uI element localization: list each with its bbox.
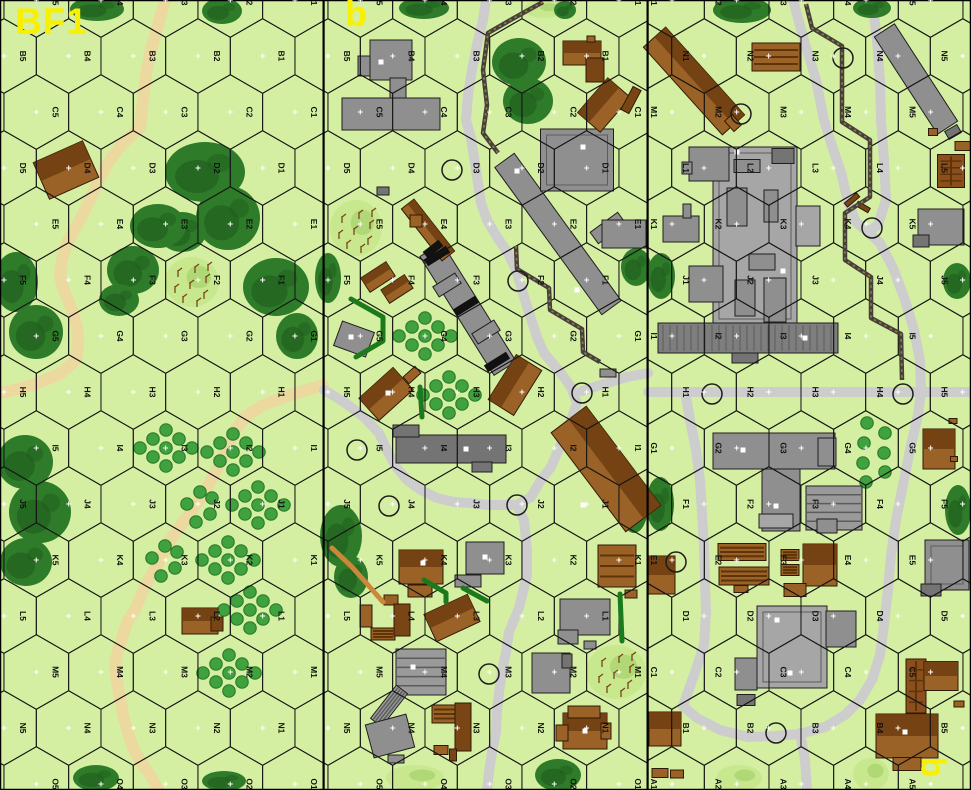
stone-building <box>796 206 820 246</box>
hex-coordinate-label: G4 <box>439 330 449 342</box>
hex-coordinate-label: E5 <box>374 219 384 230</box>
door-marker <box>581 145 586 150</box>
hex-coordinate-label: M5 <box>374 666 384 678</box>
hex-coordinate-label: B5 <box>342 51 352 62</box>
door-marker <box>774 504 779 509</box>
wooden-building <box>556 725 568 741</box>
hex-coordinate-label: E4 <box>843 555 853 566</box>
hex-coordinate-label: M1 <box>649 106 659 118</box>
hex-coordinate-label: N4 <box>407 723 417 734</box>
hex-coordinate-label: I2 <box>244 444 254 451</box>
brush-patch <box>853 758 889 790</box>
door-marker <box>464 447 469 452</box>
hex-coordinate-label: I2 <box>568 444 578 451</box>
hex-coordinate-label: K4 <box>115 555 125 566</box>
woods <box>130 204 186 248</box>
hex-coordinate-label: A5 <box>374 0 384 6</box>
hex-coordinate-label: N5 <box>940 51 950 62</box>
door-marker <box>903 730 908 735</box>
hex-coordinate-label: J4 <box>407 499 417 509</box>
hex-coordinate-label: M2 <box>714 106 724 118</box>
hex-coordinate-label: B4 <box>875 723 885 734</box>
hex-coordinate-label: F3 <box>810 499 820 509</box>
door-marker <box>411 665 416 670</box>
hex-coordinate-label: H3 <box>147 387 157 398</box>
hex-coordinate-label: C3 <box>504 107 514 118</box>
stone-building <box>663 216 699 242</box>
hex-coordinate-label: O5 <box>908 0 918 6</box>
stone-building <box>749 254 775 270</box>
brush-patch <box>386 765 444 790</box>
hex-coordinate-label: H1 <box>681 387 691 398</box>
hex-coordinate-label: G5 <box>374 330 384 342</box>
hex-coordinate-label: J4 <box>875 275 885 285</box>
hex-coordinate-label: C5 <box>908 667 918 678</box>
stone-building <box>764 190 778 222</box>
wooden-building <box>924 662 958 691</box>
hex-coordinate-label: A3 <box>778 779 788 790</box>
wooden-building <box>649 712 681 746</box>
stone-building <box>558 630 578 644</box>
hex-coordinate-label: C2 <box>244 107 254 118</box>
hex-coordinate-label: B3 <box>147 51 157 62</box>
hex-coordinate-label: H5 <box>18 387 28 398</box>
hex-coordinate-label: J1 <box>277 499 287 509</box>
hex-coordinate-label: D1 <box>681 611 691 622</box>
hex-coordinate-label: K5 <box>908 219 918 230</box>
stone-building <box>370 40 412 80</box>
hex-coordinate-label: O5 <box>374 778 384 790</box>
wooden-building <box>718 544 766 561</box>
stone-building <box>377 187 389 195</box>
stone-building <box>584 641 596 649</box>
hex-coordinate-label: G5 <box>50 330 60 342</box>
hex-coordinate-label: G1 <box>649 442 659 454</box>
hex-coordinate-label: O2 <box>568 778 578 790</box>
hex-coordinate-label: J5 <box>18 499 28 509</box>
hex-coordinate-label: B3 <box>471 51 481 62</box>
hex-coordinate-label: C3 <box>778 667 788 678</box>
hex-coordinate-label: C4 <box>439 107 449 118</box>
hex-coordinate-label: L4 <box>83 611 93 621</box>
wooden-building <box>949 419 957 424</box>
door-marker <box>581 503 586 508</box>
stone-building <box>689 147 729 181</box>
wooden-building <box>587 36 595 42</box>
board-seam <box>647 0 649 790</box>
wooden-building <box>923 429 955 469</box>
hex-coordinate-label: D2 <box>746 611 756 622</box>
board-label-b: b <box>345 0 367 32</box>
stone-building <box>772 149 794 164</box>
stone-building <box>713 433 835 469</box>
board-label-bf1: BF1 <box>15 3 88 40</box>
hex-coordinate-label: O4 <box>439 778 449 790</box>
wooden-building <box>929 129 938 136</box>
wooden-building <box>625 590 637 598</box>
woods <box>9 481 71 543</box>
hex-coordinate-label: C2 <box>714 667 724 678</box>
hex-coordinate-label: I4 <box>843 332 853 339</box>
hex-coordinate-label: G3 <box>504 330 514 342</box>
hex-coordinate-label: E5 <box>50 219 60 230</box>
hex-coordinate-label: G2 <box>244 330 254 342</box>
hex-coordinate-label: E1 <box>633 219 643 230</box>
hex-coordinate-label: J5 <box>342 499 352 509</box>
hex-coordinate-label: M3 <box>778 106 788 118</box>
hex-coordinate-label: B3 <box>810 723 820 734</box>
hex-coordinate-label: K4 <box>439 555 449 566</box>
hex-coordinate-label: F1 <box>601 275 611 285</box>
wooden-building <box>951 457 958 462</box>
hex-coordinate-label: H3 <box>810 387 820 398</box>
hex-coordinate-label: I4 <box>439 444 449 451</box>
wooden-building <box>360 605 372 627</box>
hex-coordinate-label: L1 <box>277 611 287 621</box>
wooden-building <box>410 215 422 227</box>
hex-coordinate-label: C4 <box>843 667 853 678</box>
hex-coordinate-label: M1 <box>633 666 643 678</box>
door-marker <box>775 618 780 623</box>
hex-coordinate-label: K5 <box>50 555 60 566</box>
woods <box>99 284 139 316</box>
hex-coordinate-label: K1 <box>649 219 659 230</box>
hex-coordinate-label: K3 <box>180 555 190 566</box>
hex-coordinate-label: F2 <box>746 499 756 509</box>
hex-coordinate-label: I1 <box>633 444 643 451</box>
wooden-building <box>371 628 395 640</box>
hex-coordinate-label: F3 <box>471 275 481 285</box>
wooden-building <box>652 769 668 778</box>
hex-coordinate-label: D2 <box>212 163 222 174</box>
door-marker <box>781 269 786 274</box>
stone-building <box>541 129 614 191</box>
hex-coordinate-label: D2 <box>536 163 546 174</box>
stone-building <box>358 56 370 76</box>
stone-building <box>735 280 755 316</box>
hex-coordinate-label: N2 <box>746 51 756 62</box>
hex-coordinate-label: A1 <box>649 779 659 790</box>
hex-coordinate-label: A3 <box>504 0 514 6</box>
wooden-building <box>954 701 964 707</box>
hex-coordinate-label: F4 <box>875 499 885 509</box>
hex-coordinate-label: D4 <box>407 163 417 174</box>
hex-coordinate-label: F2 <box>212 275 222 285</box>
hex-coordinate-label: J1 <box>601 499 611 509</box>
hex-coordinate-label: N3 <box>147 723 157 734</box>
hex-coordinate-label: H4 <box>875 387 885 398</box>
woods <box>0 538 52 586</box>
hedge <box>620 594 622 641</box>
stone-building <box>913 235 929 247</box>
hex-coordinate-label: I5 <box>50 444 60 451</box>
hex-coordinate-label: G4 <box>115 330 125 342</box>
hex-coordinate-label: A1 <box>633 0 643 6</box>
hex-coordinate-label: K2 <box>244 555 254 566</box>
hex-coordinate-label: J1 <box>681 275 691 285</box>
hex-coordinate-label: G4 <box>843 442 853 454</box>
stone-building <box>658 323 838 353</box>
woods <box>647 253 675 299</box>
hex-coordinate-label: F1 <box>681 499 691 509</box>
hex-coordinate-label: I5 <box>374 444 384 451</box>
hex-coordinate-label: N3 <box>471 723 481 734</box>
hex-coordinate-label: C4 <box>115 107 125 118</box>
hex-coordinate-label: D3 <box>147 163 157 174</box>
hex-coordinate-label: B4 <box>407 51 417 62</box>
hex-coordinate-label: B1 <box>277 51 287 62</box>
stone-building <box>727 188 747 226</box>
door-marker <box>735 150 740 155</box>
hex-coordinate-label: C2 <box>568 107 578 118</box>
hex-coordinate-label: O5 <box>50 778 60 790</box>
hex-coordinate-label: M1 <box>309 666 319 678</box>
hex-coordinate-label: D5 <box>342 163 352 174</box>
door-marker <box>349 335 354 340</box>
hex-coordinate-label: E4 <box>115 219 125 230</box>
hex-coordinate-label: N1 <box>681 51 691 62</box>
door-marker <box>379 60 384 65</box>
hex-coordinate-label: H4 <box>83 387 93 398</box>
hedge <box>420 387 422 417</box>
stone-building <box>764 278 786 322</box>
hex-coordinate-label: C1 <box>309 107 319 118</box>
hex-coordinate-label: M3 <box>180 666 190 678</box>
hex-coordinate-label: A4 <box>843 779 853 790</box>
hex-coordinate-label: O4 <box>115 778 125 790</box>
hex-coordinate-label: G1 <box>309 330 319 342</box>
brush-patch <box>165 257 219 307</box>
hex-coordinate-label: E3 <box>778 555 788 566</box>
hex-coordinate-label: E1 <box>649 555 659 566</box>
hex-coordinate-label: A2 <box>714 779 724 790</box>
hex-coordinate-label: B2 <box>746 723 756 734</box>
woods <box>945 485 971 535</box>
wooden-building <box>586 58 604 82</box>
hex-coordinate-label: E2 <box>568 219 578 230</box>
door-marker <box>575 288 580 293</box>
board-label-b-rotated: b <box>915 757 949 778</box>
hex-coordinate-label: D4 <box>83 163 93 174</box>
hex-coordinate-label: M2 <box>244 666 254 678</box>
hex-coordinate-label: L2 <box>212 611 222 621</box>
board-seam <box>323 0 325 790</box>
hex-coordinate-label: N1 <box>601 723 611 734</box>
hex-coordinate-label: D5 <box>940 611 950 622</box>
stone-building <box>817 519 837 533</box>
stone-building <box>472 462 492 472</box>
hex-coordinate-label: F3 <box>147 275 157 285</box>
hex-coordinate-label: L4 <box>407 611 417 621</box>
hex-coordinate-label: I3 <box>778 332 788 339</box>
hex-coordinate-label: J3 <box>147 499 157 509</box>
hex-coordinate-label: O3 <box>180 778 190 790</box>
hex-coordinate-label: O1 <box>633 778 643 790</box>
hex-coordinate-label: A4 <box>439 0 449 6</box>
hex-coordinate-label: G3 <box>778 442 788 454</box>
hex-coordinate-label: I1 <box>649 332 659 339</box>
wooden-building <box>955 142 971 151</box>
wooden-building <box>876 714 938 758</box>
hex-coordinate-label: K2 <box>714 219 724 230</box>
hex-coordinate-label: O3 <box>504 778 514 790</box>
door-marker <box>741 448 746 453</box>
hex-coordinate-label: I3 <box>180 444 190 451</box>
hex-coordinate-label: M4 <box>115 666 125 678</box>
hex-coordinate-label: C5 <box>50 107 60 118</box>
hex-coordinate-label: H5 <box>342 387 352 398</box>
hex-coordinate-label: H2 <box>212 387 222 398</box>
hex-coordinate-label: A5 <box>908 779 918 790</box>
hex-coordinate-label: D1 <box>277 163 287 174</box>
hex-coordinate-label: C1 <box>649 667 659 678</box>
hex-coordinate-label: E3 <box>504 219 514 230</box>
hex-coordinate-label: H2 <box>746 387 756 398</box>
hex-coordinate-label: L2 <box>746 163 756 173</box>
hex-coordinate-label: I2 <box>714 332 724 339</box>
hex-coordinate-label: B2 <box>536 51 546 62</box>
hex-coordinate-label: B2 <box>212 51 222 62</box>
hex-coordinate-label: G5 <box>908 442 918 454</box>
stone-building <box>826 611 856 647</box>
door-marker <box>515 169 520 174</box>
hex-coordinate-label: J4 <box>83 499 93 509</box>
hex-coordinate-label: I1 <box>309 444 319 451</box>
hex-coordinate-label: I4 <box>115 444 125 451</box>
door-marker <box>386 391 391 396</box>
hex-coordinate-label: N4 <box>875 51 885 62</box>
wooden-building <box>568 706 600 718</box>
hex-coordinate-label: A1 <box>309 0 319 6</box>
hex-coordinate-label: J3 <box>471 499 481 509</box>
hex-coordinate-label: H1 <box>601 387 611 398</box>
hex-coordinate-label: A3 <box>180 0 190 6</box>
hex-coordinate-label: L5 <box>18 611 28 621</box>
hex-coordinate-label: B5 <box>18 51 28 62</box>
hex-coordinate-label: N2 <box>212 723 222 734</box>
hex-coordinate-label: D3 <box>471 163 481 174</box>
hex-coordinate-label: B5 <box>940 723 950 734</box>
door-marker <box>483 555 488 560</box>
stone-building <box>388 755 404 763</box>
woods <box>73 765 119 790</box>
hex-coordinate-label: C3 <box>180 107 190 118</box>
hex-coordinate-label: E3 <box>180 219 190 230</box>
hex-coordinate-label: N5 <box>18 723 28 734</box>
hex-coordinate-label: F1 <box>277 275 287 285</box>
hex-coordinate-label: E5 <box>908 555 918 566</box>
hex-coordinate-label: M2 <box>568 666 578 678</box>
hex-coordinate-label: O3 <box>778 0 788 6</box>
stone-building <box>732 353 758 363</box>
hex-coordinate-label: H3 <box>471 387 481 398</box>
hex-coordinate-label: M3 <box>504 666 514 678</box>
hex-coordinate-label: G2 <box>714 442 724 454</box>
hex-coordinate-label: J2 <box>746 275 756 285</box>
hex-map[interactable]: A5A4A3A2A1B5B4B3B2B1C5C4C3C2C1D5D4D3D2D1… <box>0 0 971 790</box>
hex-coordinate-label: I5 <box>908 332 918 339</box>
hex-coordinate-label: G2 <box>568 330 578 342</box>
wooden-building <box>399 550 443 584</box>
hex-coordinate-label: M4 <box>843 106 853 118</box>
hex-coordinate-label: G1 <box>633 330 643 342</box>
hex-coordinate-label: K4 <box>843 219 853 230</box>
hex-coordinate-label: A2 <box>244 0 254 6</box>
hex-coordinate-label: O4 <box>843 0 853 6</box>
hex-coordinate-label: H1 <box>277 387 287 398</box>
hex-coordinate-label: K3 <box>504 555 514 566</box>
hex-coordinate-label: F5 <box>940 499 950 509</box>
hex-coordinate-label: E4 <box>439 219 449 230</box>
hex-coordinate-label: E1 <box>309 219 319 230</box>
wooden-building <box>671 770 684 778</box>
hex-coordinate-label: K2 <box>568 555 578 566</box>
hex-coordinate-label: H2 <box>536 387 546 398</box>
hex-coordinate-label: C1 <box>633 107 643 118</box>
hex-coordinate-label: N3 <box>810 51 820 62</box>
hex-coordinate-label: N5 <box>342 723 352 734</box>
hex-coordinate-label: A4 <box>115 0 125 6</box>
hex-coordinate-label: O1 <box>649 0 659 6</box>
hex-coordinate-label: O1 <box>309 778 319 790</box>
hex-coordinate-label: M4 <box>439 666 449 678</box>
hex-coordinate-label: A2 <box>568 0 578 6</box>
hex-coordinate-label: J2 <box>212 499 222 509</box>
wooden-building <box>598 545 636 587</box>
hex-coordinate-label: K1 <box>309 555 319 566</box>
hex-coordinate-label: J5 <box>940 275 950 285</box>
hex-coordinate-label: F5 <box>18 275 28 285</box>
hex-coordinate-label: K3 <box>778 219 788 230</box>
stone-building <box>735 658 757 690</box>
hex-coordinate-label: B1 <box>601 51 611 62</box>
hex-coordinate-label: L1 <box>681 163 691 173</box>
hex-coordinate-label: L5 <box>342 611 352 621</box>
hex-coordinate-label: F4 <box>407 275 417 285</box>
hex-coordinate-label: L3 <box>810 163 820 173</box>
hex-coordinate-label: E2 <box>244 219 254 230</box>
hex-coordinate-label: M5 <box>50 666 60 678</box>
hex-coordinate-label: L1 <box>601 611 611 621</box>
hex-coordinate-label: B1 <box>681 723 691 734</box>
hex-coordinate-label: L4 <box>875 163 885 173</box>
hex-coordinate-label: G3 <box>180 330 190 342</box>
hex-coordinate-label: L5 <box>940 163 950 173</box>
hex-coordinate-label: M5 <box>908 106 918 118</box>
wooden-building <box>450 749 457 761</box>
hex-coordinate-label: H4 <box>407 387 417 398</box>
hex-coordinate-label: D1 <box>601 163 611 174</box>
hex-coordinate-label: N2 <box>536 723 546 734</box>
stone-building <box>925 540 969 590</box>
brush-patch <box>330 200 382 256</box>
hex-coordinate-label: L3 <box>471 611 481 621</box>
hex-coordinate-label: D4 <box>875 611 885 622</box>
wooden-building <box>781 565 799 576</box>
stone-building <box>683 204 691 218</box>
hex-coordinate-label: J3 <box>810 275 820 285</box>
woods <box>492 38 546 86</box>
hex-coordinate-label: O2 <box>714 0 724 6</box>
hex-coordinate-label: D5 <box>18 163 28 174</box>
hex-coordinate-label: D3 <box>810 611 820 622</box>
hex-coordinate-label: C5 <box>374 107 384 118</box>
hex-coordinate-label: N1 <box>277 723 287 734</box>
hex-coordinate-label: J2 <box>536 499 546 509</box>
woods <box>243 258 309 316</box>
wooden-building <box>752 43 800 71</box>
hex-coordinate-label: B4 <box>83 51 93 62</box>
